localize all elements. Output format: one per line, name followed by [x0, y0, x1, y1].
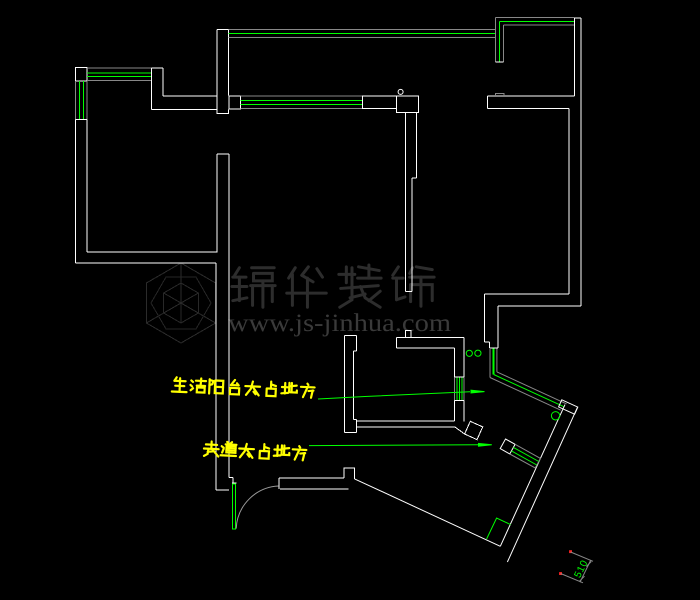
- svg-text:www.js-jinhua.com: www.js-jinhua.com: [228, 310, 452, 337]
